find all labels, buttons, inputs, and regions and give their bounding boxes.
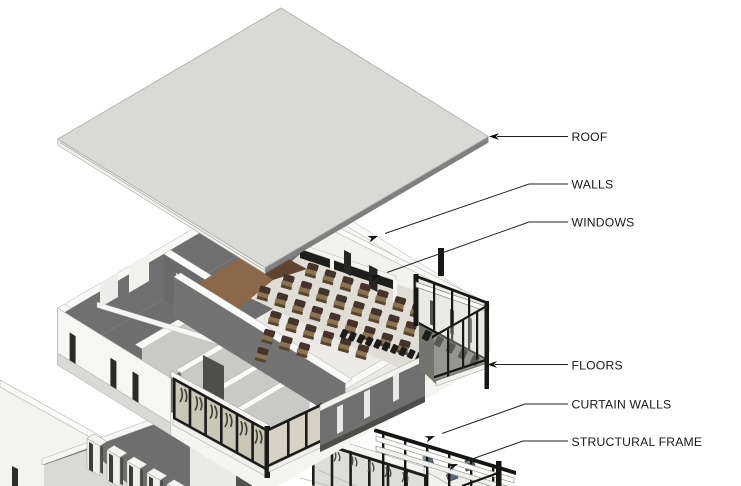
svg-text:STRUCTURAL FRAME: STRUCTURAL FRAME [572,435,703,449]
svg-text:FLOORS: FLOORS [572,359,623,373]
svg-text:WALLS: WALLS [572,178,614,192]
svg-text:ROOF: ROOF [572,130,608,144]
svg-text:CURTAIN WALLS: CURTAIN WALLS [572,398,672,412]
svg-text:WINDOWS: WINDOWS [572,216,635,230]
